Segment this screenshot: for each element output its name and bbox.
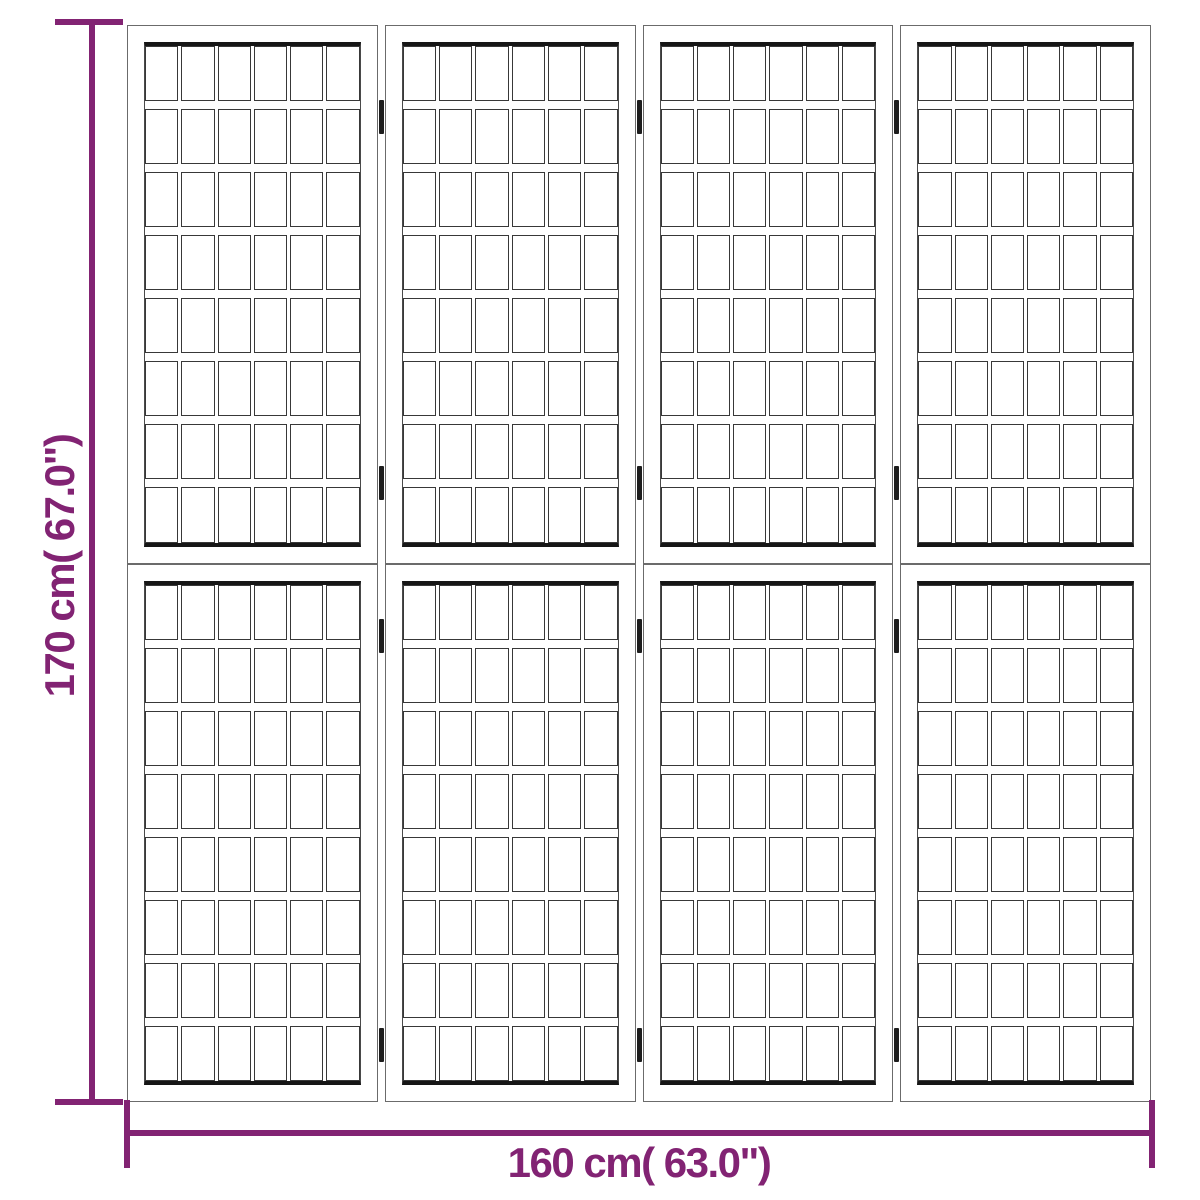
lattice-cell	[918, 711, 951, 766]
lattice-cell	[955, 648, 988, 703]
panel-hinge	[894, 619, 899, 653]
lattice-cell	[991, 172, 1024, 227]
lattice-cell	[769, 172, 802, 227]
divider-panel	[900, 25, 1151, 1102]
lattice-cell	[733, 774, 766, 829]
lattice-cell	[512, 172, 545, 227]
lattice-cell	[733, 711, 766, 766]
lattice-cell	[145, 172, 178, 227]
lattice-cell	[842, 109, 875, 164]
lattice-cell	[181, 963, 214, 1018]
lattice-cell	[326, 774, 359, 829]
lattice-cell	[806, 109, 839, 164]
lattice-cell	[181, 900, 214, 955]
lattice-cell	[439, 109, 472, 164]
panel-section	[127, 564, 378, 1103]
lattice-cell	[512, 837, 545, 892]
lattice-cell	[955, 424, 988, 479]
lattice-cell	[181, 172, 214, 227]
lattice-cell	[991, 1026, 1024, 1081]
lattice-cell	[403, 361, 436, 416]
lattice-cell	[769, 774, 802, 829]
lattice-cell	[697, 585, 730, 640]
panel-lattice	[917, 42, 1134, 547]
lattice-cell	[439, 900, 472, 955]
lattice-cell	[181, 109, 214, 164]
divider-panel	[127, 25, 378, 1102]
lattice-cell	[806, 648, 839, 703]
lattice-cell	[661, 900, 694, 955]
lattice-cell	[733, 424, 766, 479]
lattice-cell	[955, 487, 988, 542]
lattice-cell	[806, 235, 839, 290]
lattice-cell	[697, 963, 730, 1018]
panel-hinge	[637, 466, 642, 500]
lattice-cell	[697, 648, 730, 703]
lattice-cell	[181, 424, 214, 479]
lattice-cell	[1063, 648, 1096, 703]
lattice-cell	[218, 648, 251, 703]
lattice-cell	[1063, 837, 1096, 892]
lattice-cell	[290, 235, 323, 290]
lattice-cell	[218, 487, 251, 542]
lattice-cell	[1027, 774, 1060, 829]
lattice-cell	[806, 424, 839, 479]
lattice-cell	[991, 109, 1024, 164]
lattice-cell	[218, 235, 251, 290]
lattice-cell	[1100, 424, 1133, 479]
lattice-cell	[403, 172, 436, 227]
panel-section	[900, 564, 1151, 1103]
lattice-cell	[584, 1026, 617, 1081]
lattice-cell	[733, 109, 766, 164]
lattice-cell	[733, 361, 766, 416]
lattice-cell	[181, 298, 214, 353]
panel-hinge	[379, 466, 384, 500]
lattice-cell	[1027, 487, 1060, 542]
lattice-cell	[1063, 109, 1096, 164]
lattice-cell	[1027, 46, 1060, 101]
lattice-cell	[842, 963, 875, 1018]
width-dimension-right-cap	[1149, 1100, 1155, 1168]
lattice-cell	[290, 648, 323, 703]
lattice-cell	[1100, 235, 1133, 290]
lattice-cell	[403, 1026, 436, 1081]
lattice-cell	[145, 487, 178, 542]
lattice-cell	[842, 172, 875, 227]
lattice-cell	[1100, 963, 1133, 1018]
lattice-cell	[403, 298, 436, 353]
lattice-cell	[697, 298, 730, 353]
panel-hinge	[637, 100, 642, 134]
lattice-cell	[290, 172, 323, 227]
lattice-cell	[697, 361, 730, 416]
lattice-cell	[548, 361, 581, 416]
lattice-cell	[181, 1026, 214, 1081]
lattice-cell	[918, 963, 951, 1018]
lattice-cell	[1027, 424, 1060, 479]
lattice-cell	[991, 585, 1024, 640]
lattice-cell	[1100, 46, 1133, 101]
lattice-cell	[918, 298, 951, 353]
lattice-cell	[955, 109, 988, 164]
lattice-cell	[769, 837, 802, 892]
lattice-cell	[403, 648, 436, 703]
lattice-cell	[955, 711, 988, 766]
lattice-cell	[326, 648, 359, 703]
lattice-cell	[842, 46, 875, 101]
lattice-cell	[290, 963, 323, 1018]
panel-lattice	[402, 42, 619, 547]
lattice-cell	[806, 361, 839, 416]
lattice-cell	[661, 487, 694, 542]
lattice-cell	[254, 487, 287, 542]
divider-panel	[643, 25, 894, 1102]
lattice-cell	[1063, 361, 1096, 416]
lattice-cell	[1063, 424, 1096, 479]
lattice-cell	[661, 837, 694, 892]
lattice-cell	[918, 837, 951, 892]
lattice-cell	[403, 424, 436, 479]
lattice-cell	[290, 361, 323, 416]
lattice-cell	[548, 963, 581, 1018]
lattice-cell	[403, 963, 436, 1018]
lattice-cell	[661, 963, 694, 1018]
lattice-cell	[769, 585, 802, 640]
lattice-cell	[181, 774, 214, 829]
lattice-cell	[842, 361, 875, 416]
lattice-cell	[769, 648, 802, 703]
lattice-cell	[918, 235, 951, 290]
lattice-cell	[254, 711, 287, 766]
lattice-cell	[475, 109, 508, 164]
lattice-cell	[181, 837, 214, 892]
height-dimension-label: 170 cm( 67.0")	[39, 435, 81, 698]
panel-lattice	[144, 42, 361, 547]
lattice-cell	[955, 774, 988, 829]
lattice-cell	[1027, 711, 1060, 766]
lattice-cell	[955, 1026, 988, 1081]
lattice-cell	[512, 298, 545, 353]
lattice-cell	[475, 46, 508, 101]
lattice-cell	[290, 424, 323, 479]
lattice-cell	[512, 648, 545, 703]
lattice-cell	[290, 109, 323, 164]
lattice-cell	[548, 837, 581, 892]
lattice-cell	[1100, 1026, 1133, 1081]
lattice-cell	[326, 361, 359, 416]
lattice-cell	[145, 298, 178, 353]
lattice-cell	[842, 585, 875, 640]
lattice-cell	[512, 235, 545, 290]
panel-lattice	[917, 581, 1134, 1086]
lattice-cell	[326, 585, 359, 640]
lattice-cell	[733, 46, 766, 101]
lattice-cell	[475, 711, 508, 766]
lattice-cell	[1100, 711, 1133, 766]
lattice-cell	[842, 424, 875, 479]
lattice-cell	[439, 1026, 472, 1081]
lattice-cell	[512, 424, 545, 479]
lattice-cell	[1063, 487, 1096, 542]
lattice-cell	[439, 361, 472, 416]
lattice-cell	[1063, 900, 1096, 955]
lattice-cell	[475, 963, 508, 1018]
lattice-cell	[218, 298, 251, 353]
panel-hinge	[379, 1028, 384, 1062]
lattice-cell	[769, 424, 802, 479]
lattice-cell	[991, 837, 1024, 892]
lattice-cell	[512, 585, 545, 640]
lattice-cell	[955, 298, 988, 353]
lattice-cell	[512, 109, 545, 164]
lattice-cell	[290, 298, 323, 353]
lattice-cell	[439, 235, 472, 290]
lattice-cell	[918, 487, 951, 542]
lattice-cell	[439, 298, 472, 353]
lattice-cell	[1063, 298, 1096, 353]
lattice-cell	[475, 172, 508, 227]
lattice-cell	[475, 648, 508, 703]
lattice-cell	[145, 711, 178, 766]
lattice-cell	[326, 900, 359, 955]
panel-hinge	[894, 466, 899, 500]
lattice-cell	[1063, 172, 1096, 227]
lattice-cell	[769, 46, 802, 101]
lattice-cell	[806, 774, 839, 829]
lattice-cell	[145, 585, 178, 640]
lattice-cell	[991, 774, 1024, 829]
lattice-cell	[290, 487, 323, 542]
lattice-cell	[290, 46, 323, 101]
lattice-cell	[1063, 774, 1096, 829]
lattice-cell	[326, 963, 359, 1018]
lattice-cell	[218, 424, 251, 479]
lattice-cell	[512, 774, 545, 829]
lattice-cell	[991, 298, 1024, 353]
lattice-cell	[439, 837, 472, 892]
lattice-cell	[475, 235, 508, 290]
panel-hinge	[894, 100, 899, 134]
lattice-cell	[181, 585, 214, 640]
lattice-cell	[218, 1026, 251, 1081]
lattice-cell	[842, 837, 875, 892]
lattice-cell	[1027, 648, 1060, 703]
lattice-cell	[1100, 109, 1133, 164]
lattice-cell	[326, 424, 359, 479]
lattice-cell	[326, 487, 359, 542]
lattice-cell	[254, 235, 287, 290]
panel-hinge	[379, 619, 384, 653]
lattice-cell	[842, 900, 875, 955]
lattice-cell	[991, 900, 1024, 955]
lattice-cell	[806, 837, 839, 892]
lattice-cell	[733, 963, 766, 1018]
lattice-cell	[1027, 585, 1060, 640]
lattice-cell	[806, 585, 839, 640]
lattice-cell	[512, 487, 545, 542]
lattice-cell	[918, 109, 951, 164]
lattice-cell	[661, 46, 694, 101]
lattice-cell	[1100, 172, 1133, 227]
lattice-cell	[1027, 900, 1060, 955]
lattice-cell	[769, 487, 802, 542]
lattice-cell	[842, 235, 875, 290]
lattice-cell	[403, 235, 436, 290]
lattice-cell	[733, 487, 766, 542]
lattice-cell	[769, 235, 802, 290]
lattice-cell	[145, 235, 178, 290]
lattice-cell	[697, 109, 730, 164]
lattice-cell	[661, 585, 694, 640]
lattice-cell	[842, 648, 875, 703]
lattice-cell	[548, 235, 581, 290]
lattice-cell	[145, 109, 178, 164]
lattice-cell	[439, 424, 472, 479]
lattice-cell	[697, 487, 730, 542]
room-divider-illustration	[127, 25, 1151, 1102]
lattice-cell	[548, 648, 581, 703]
height-dimension-bottom-cap	[55, 1099, 123, 1105]
lattice-cell	[661, 1026, 694, 1081]
lattice-cell	[991, 46, 1024, 101]
lattice-cell	[181, 361, 214, 416]
lattice-cell	[806, 172, 839, 227]
lattice-cell	[584, 774, 617, 829]
lattice-cell	[548, 774, 581, 829]
lattice-cell	[769, 900, 802, 955]
lattice-cell	[1100, 837, 1133, 892]
panel-hinge	[894, 1028, 899, 1062]
lattice-cell	[254, 1026, 287, 1081]
lattice-cell	[218, 172, 251, 227]
lattice-cell	[254, 361, 287, 416]
lattice-cell	[733, 648, 766, 703]
lattice-cell	[439, 46, 472, 101]
lattice-cell	[254, 774, 287, 829]
lattice-cell	[955, 46, 988, 101]
divider-panel	[385, 25, 636, 1102]
lattice-cell	[475, 585, 508, 640]
lattice-cell	[512, 1026, 545, 1081]
lattice-cell	[254, 46, 287, 101]
lattice-cell	[439, 774, 472, 829]
lattice-cell	[584, 963, 617, 1018]
lattice-cell	[548, 1026, 581, 1081]
lattice-cell	[403, 837, 436, 892]
lattice-cell	[661, 648, 694, 703]
lattice-cell	[842, 298, 875, 353]
lattice-cell	[697, 424, 730, 479]
lattice-cell	[991, 648, 1024, 703]
lattice-cell	[918, 172, 951, 227]
lattice-cell	[548, 711, 581, 766]
lattice-cell	[548, 900, 581, 955]
panel-section	[385, 564, 636, 1103]
lattice-cell	[475, 837, 508, 892]
lattice-cell	[918, 774, 951, 829]
lattice-cell	[326, 298, 359, 353]
lattice-cell	[548, 109, 581, 164]
lattice-cell	[512, 963, 545, 1018]
panel-hinge	[637, 1028, 642, 1062]
lattice-cell	[1100, 361, 1133, 416]
lattice-cell	[584, 361, 617, 416]
lattice-cell	[254, 648, 287, 703]
lattice-cell	[1027, 837, 1060, 892]
lattice-cell	[1100, 298, 1133, 353]
lattice-cell	[955, 837, 988, 892]
lattice-cell	[918, 46, 951, 101]
lattice-cell	[512, 711, 545, 766]
lattice-cell	[584, 298, 617, 353]
lattice-cell	[584, 487, 617, 542]
lattice-cell	[145, 774, 178, 829]
lattice-cell	[769, 361, 802, 416]
lattice-cell	[661, 298, 694, 353]
lattice-cell	[218, 774, 251, 829]
product-image: 170 cm( 67.0") 160 cm( 63.0")	[0, 0, 1200, 1200]
lattice-cell	[1100, 774, 1133, 829]
lattice-cell	[955, 900, 988, 955]
lattice-cell	[403, 46, 436, 101]
lattice-cell	[733, 837, 766, 892]
lattice-cell	[548, 172, 581, 227]
lattice-cell	[403, 585, 436, 640]
lattice-cell	[218, 585, 251, 640]
panel-section	[643, 564, 894, 1103]
lattice-cell	[145, 1026, 178, 1081]
lattice-cell	[769, 1026, 802, 1081]
lattice-cell	[326, 711, 359, 766]
lattice-cell	[1100, 487, 1133, 542]
lattice-cell	[475, 487, 508, 542]
lattice-cell	[918, 585, 951, 640]
lattice-cell	[661, 424, 694, 479]
lattice-cell	[181, 487, 214, 542]
lattice-cell	[1027, 172, 1060, 227]
lattice-cell	[991, 963, 1024, 1018]
lattice-cell	[697, 837, 730, 892]
lattice-cell	[991, 235, 1024, 290]
lattice-cell	[584, 585, 617, 640]
lattice-cell	[769, 109, 802, 164]
lattice-cell	[181, 46, 214, 101]
lattice-cell	[548, 46, 581, 101]
lattice-cell	[439, 963, 472, 1018]
lattice-cell	[439, 648, 472, 703]
lattice-cell	[697, 774, 730, 829]
lattice-cell	[475, 1026, 508, 1081]
lattice-cell	[548, 298, 581, 353]
lattice-cell	[1027, 235, 1060, 290]
lattice-cell	[254, 585, 287, 640]
width-dimension-label: 160 cm( 63.0")	[508, 1142, 771, 1184]
lattice-cell	[475, 298, 508, 353]
lattice-cell	[254, 298, 287, 353]
lattice-cell	[326, 109, 359, 164]
lattice-cell	[218, 963, 251, 1018]
lattice-cell	[403, 774, 436, 829]
lattice-cell	[955, 963, 988, 1018]
lattice-cell	[733, 900, 766, 955]
lattice-cell	[290, 711, 323, 766]
lattice-cell	[806, 46, 839, 101]
lattice-cell	[584, 46, 617, 101]
lattice-cell	[475, 774, 508, 829]
lattice-cell	[1063, 1026, 1096, 1081]
lattice-cell	[475, 900, 508, 955]
